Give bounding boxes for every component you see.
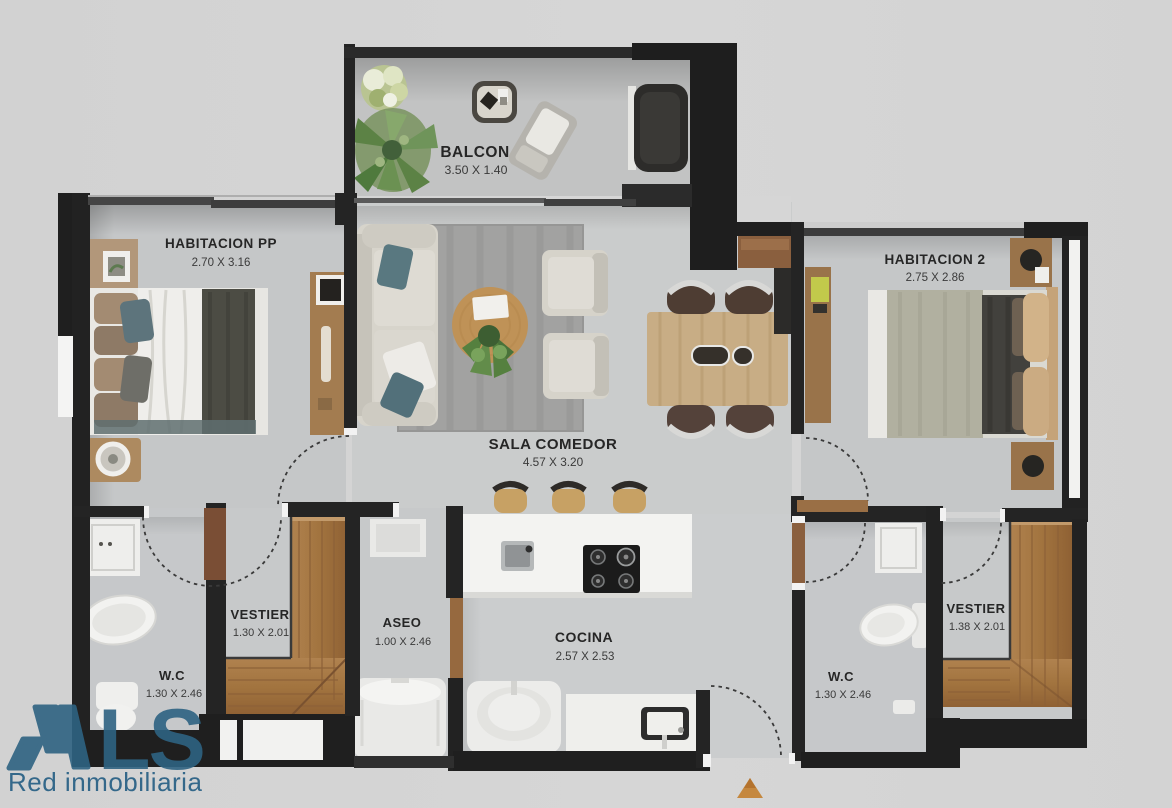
svg-text:1.00 X 2.46: 1.00 X 2.46 <box>375 636 431 648</box>
svg-text:VESTIER: VESTIER <box>230 607 289 622</box>
svg-text:W.C: W.C <box>828 669 854 684</box>
svg-text:1.30 X 2.01: 1.30 X 2.01 <box>233 627 289 639</box>
svg-text:3.50 X 1.40: 3.50 X 1.40 <box>445 163 508 177</box>
svg-text:SALA COMEDOR: SALA COMEDOR <box>489 436 618 453</box>
svg-text:W.C: W.C <box>159 668 185 683</box>
svg-text:HABITACION PP: HABITACION PP <box>165 236 277 251</box>
svg-text:ASEO: ASEO <box>383 615 422 630</box>
svg-text:VESTIER: VESTIER <box>946 601 1005 616</box>
svg-text:HABITACION 2: HABITACION 2 <box>884 252 985 267</box>
svg-text:COCINA: COCINA <box>555 629 613 645</box>
svg-text:BALCON: BALCON <box>440 144 509 161</box>
svg-text:1.30 X 2.46: 1.30 X 2.46 <box>815 689 871 701</box>
svg-text:1.38 X 2.01: 1.38 X 2.01 <box>949 621 1005 633</box>
svg-text:Red inmobiliaria: Red inmobiliaria <box>8 767 202 797</box>
svg-text:2.57 X 2.53: 2.57 X 2.53 <box>556 651 615 663</box>
svg-text:2.75 X 2.86: 2.75 X 2.86 <box>906 272 965 284</box>
svg-text:2.70 X 3.16: 2.70 X 3.16 <box>192 257 251 269</box>
svg-text:4.57 X 3.20: 4.57 X 3.20 <box>523 455 584 469</box>
